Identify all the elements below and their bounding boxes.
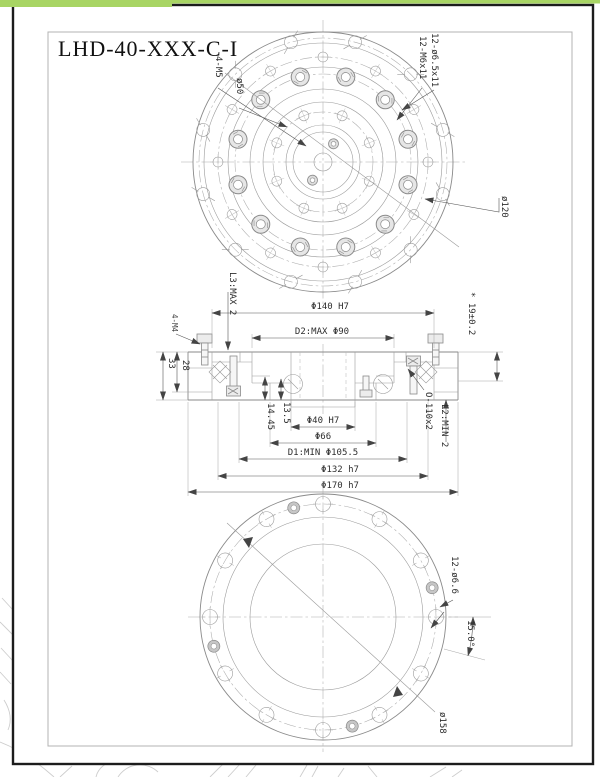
label-holes-tapped: 12-M6x11: [417, 36, 427, 79]
label-d66: Φ66: [315, 432, 331, 442]
label-l3: L3:MAX 2: [227, 272, 237, 315]
accent-bar-thin: [172, 0, 600, 4]
label-angle: 15.0°: [465, 620, 475, 647]
label-d50: ø50: [234, 78, 244, 94]
label-d2max: D2:MAX Φ90: [295, 327, 349, 337]
label-d1min: D1:MIN Φ105.5: [288, 448, 358, 458]
label-holes-cbore: 12-ø6.5x11: [429, 33, 439, 87]
sheet-border: [13, 5, 593, 764]
label-d40: Φ40 H7: [307, 416, 340, 426]
label-1445: 14.45: [265, 403, 275, 430]
label-19: * 19±0.2: [466, 292, 476, 335]
drawing-title: LHD-40-XXX-C-I: [58, 36, 238, 61]
label-33: 33: [166, 358, 176, 369]
accent-bar-thick: [0, 0, 172, 7]
label-135: 13.5: [281, 402, 291, 424]
label-4m5: 4-M5: [213, 56, 223, 78]
label-d140: Φ140 H7: [311, 302, 349, 312]
label-bottom-holes: 12-ø6.6: [449, 556, 459, 594]
label-d132: Φ132 h7: [321, 465, 359, 475]
label-oring: O-110x2: [423, 392, 433, 430]
label-d170: Φ170 h7: [321, 481, 359, 491]
label-d120: ø120: [499, 196, 509, 218]
label-4m4: 4-M4: [170, 314, 179, 333]
label-l2: L2:MIN 2: [439, 404, 449, 447]
label-d158: ø158: [437, 712, 447, 734]
drawing-sheet-stage: LHD-40-XXX-C-I 4-M5 ø50 12-ø6.5x11 12-M6…: [0, 0, 600, 777]
engineering-drawing-canvas: LHD-40-XXX-C-I 4-M5 ø50 12-ø6.5x11 12-M6…: [0, 0, 600, 777]
label-28: 28: [180, 360, 190, 371]
